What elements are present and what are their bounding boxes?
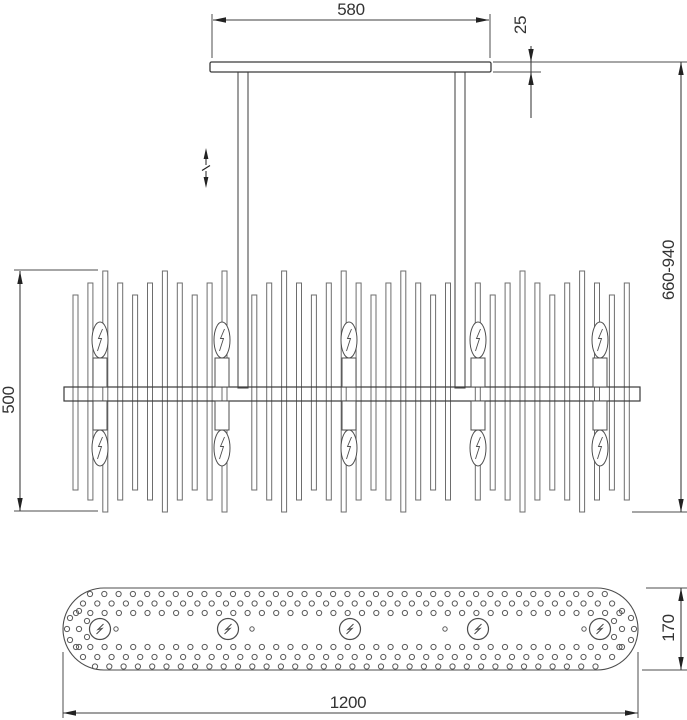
dim-canopy-width: 580 [337,0,364,19]
dimension-arrow [528,72,533,85]
crystal-bar [311,295,316,490]
dimension-arrow [17,498,22,511]
dim-body-height: 500 [0,386,18,413]
front-elevation-view [64,62,640,512]
crystal-bar [192,295,197,490]
plan-view-base [63,588,638,670]
dim-body-depth: 170 [659,614,678,641]
crystal-bar [207,283,212,500]
candle-bulb-upper [470,322,486,358]
candle-holder-upper [93,358,107,387]
candle-bulb-upper [92,322,108,358]
crystal-bar [73,295,78,490]
crystal-bar [475,283,480,500]
dim-label-25: 25 [511,16,530,34]
dim-label-1200: 1200 [330,693,367,712]
crystal-bar [88,283,93,500]
crystal-bar [535,283,540,500]
dimension-arrow [528,49,533,62]
crystal-bar [282,271,287,512]
dim-label-660-940: 660-940 [659,240,678,300]
dimension-arrow [213,17,226,22]
dimension-arrow [678,588,683,601]
crystal-bar [416,283,421,500]
crystal-bar [624,283,629,500]
crystal-bar [252,295,257,490]
ceiling-canopy [210,62,491,72]
candle-holder-lower [215,401,229,430]
crystal-bar [386,283,391,500]
chandelier-dimension-diagram: 580 25 660-940 500 1200 170 [0,0,687,720]
candle-bulb-upper [592,322,608,358]
crystal-bar [341,271,346,512]
candle-bulb-upper [214,322,230,358]
crystal-bar [162,271,167,512]
suspension-rod [455,72,465,388]
crystal-bar [177,283,182,500]
crystal-bar [267,283,272,500]
candle-holder-upper [215,358,229,387]
crystal-bar [133,295,138,490]
crystal-bar [609,295,614,490]
crystal-bar [297,283,302,500]
crystal-bar [401,271,406,512]
dim-canopy-thickness: 25 [511,16,530,34]
dim-label-580: 580 [337,0,364,19]
crystal-bar [520,271,525,512]
candle-holder-upper [342,358,356,387]
candle-holder-lower [593,401,607,430]
crystal-bar [550,295,555,490]
candle-bulb-lower [341,430,357,466]
crystal-bar [118,283,123,500]
candle-bulb-lower [592,430,608,466]
candle-bulb-lower [92,430,108,466]
crystal-bar [505,283,510,500]
dimension-arrow [17,271,22,284]
candle-bulb-upper [341,322,357,358]
candle-holder-lower [471,401,485,430]
crystal-bar [222,271,227,512]
crystal-bar [356,283,361,500]
crystal-bar [580,271,585,512]
candle-holder-upper [471,358,485,387]
dimension-arrow [476,17,489,22]
dimension-arrow [625,710,638,715]
dim-overall-height: 660-940 [659,240,678,300]
dim-body-length: 1200 [330,693,367,712]
crystal-bar [326,283,331,500]
dim-label-500: 500 [0,386,18,413]
candle-bulb-lower [470,430,486,466]
crystal-bar [371,295,376,490]
crystal-bar [595,283,600,500]
crystal-bar [490,295,495,490]
height-adjust-break-mark [202,166,210,171]
candle-holder-upper [593,358,607,387]
candle-holder-lower [93,401,107,430]
crystal-bar [565,283,570,500]
dimension-arrow [678,499,683,512]
crystal-bar [446,283,451,500]
dim-label-170: 170 [659,614,678,641]
crystal-bar [431,295,436,490]
dimension-arrow [63,710,76,715]
candle-bulb-lower [214,430,230,466]
dimension-arrow [678,657,683,670]
technical-drawing-page: 580 25 660-940 500 1200 170 [0,0,687,720]
dimension-arrow [678,62,683,75]
crystal-bar [103,271,108,512]
candle-holder-lower [342,401,356,430]
suspension-rod [238,72,248,388]
crystal-bar [148,283,153,500]
